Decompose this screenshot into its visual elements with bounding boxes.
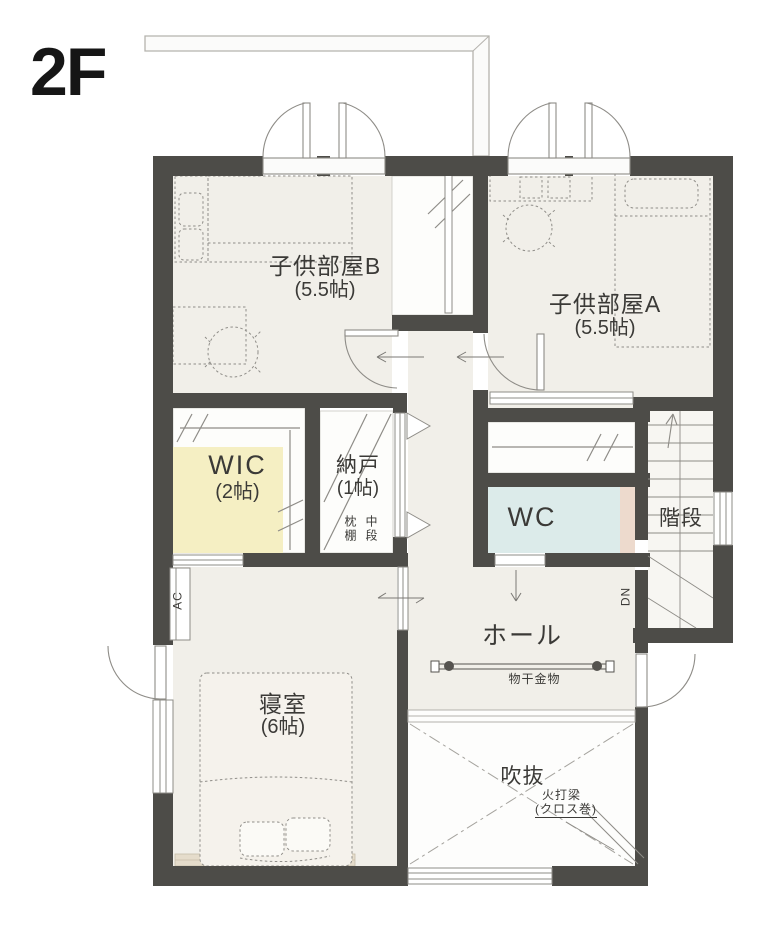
dn-label: DN [620, 578, 633, 614]
kids-b-name: 子供部屋B [240, 254, 410, 279]
nando-size: (1帖) [318, 479, 398, 500]
middle-shelf-label: 中段 [364, 503, 377, 555]
bedroom-pillow-2 [286, 818, 330, 851]
bedroom-pillow-1 [240, 822, 284, 856]
floorplan-2f: 2F 子供部屋B (5.5帖) 子供部屋A (5.5帖) WIC (2帖) 納戸… [0, 0, 768, 940]
wc-door [495, 555, 545, 565]
kids-a-name: 子供部屋A [520, 292, 690, 317]
kids-b-size: (5.5帖) [240, 280, 410, 302]
floor-label: 2F [30, 36, 140, 109]
hall-name: ホール [450, 623, 595, 650]
bedroom-side-window [153, 700, 173, 793]
hall-casement-window [636, 654, 695, 707]
fire-beam-label-2: (クロス巻) [516, 803, 616, 816]
wic-size: (2帖) [175, 482, 300, 504]
wc-name: WC [492, 503, 572, 532]
stairs-name: 階段 [646, 508, 716, 531]
kids-a-size: (5.5帖) [520, 318, 690, 340]
balcony-outline [145, 36, 489, 156]
kids-a-balcony-window [508, 103, 630, 174]
void-name: 吹抜 [480, 766, 565, 789]
nando-name: 納戸 [318, 455, 398, 478]
laundry-hardware-label: 物干金物 [472, 673, 597, 686]
pillow-shelf-label: 枕棚 [343, 503, 356, 555]
wic-name: WIC [175, 451, 300, 480]
bedroom-size: (6帖) [213, 717, 353, 739]
kids-b-balcony-window [263, 103, 385, 174]
wc-counter [620, 487, 635, 553]
bedroom-name: 寝室 [213, 692, 353, 717]
stairs-window [714, 492, 732, 545]
fire-beam-label-1: 火打梁 [520, 789, 620, 802]
bedroom-casement-window [108, 646, 166, 699]
void-bottom-window [408, 868, 552, 884]
ac-label: AC [172, 580, 185, 620]
